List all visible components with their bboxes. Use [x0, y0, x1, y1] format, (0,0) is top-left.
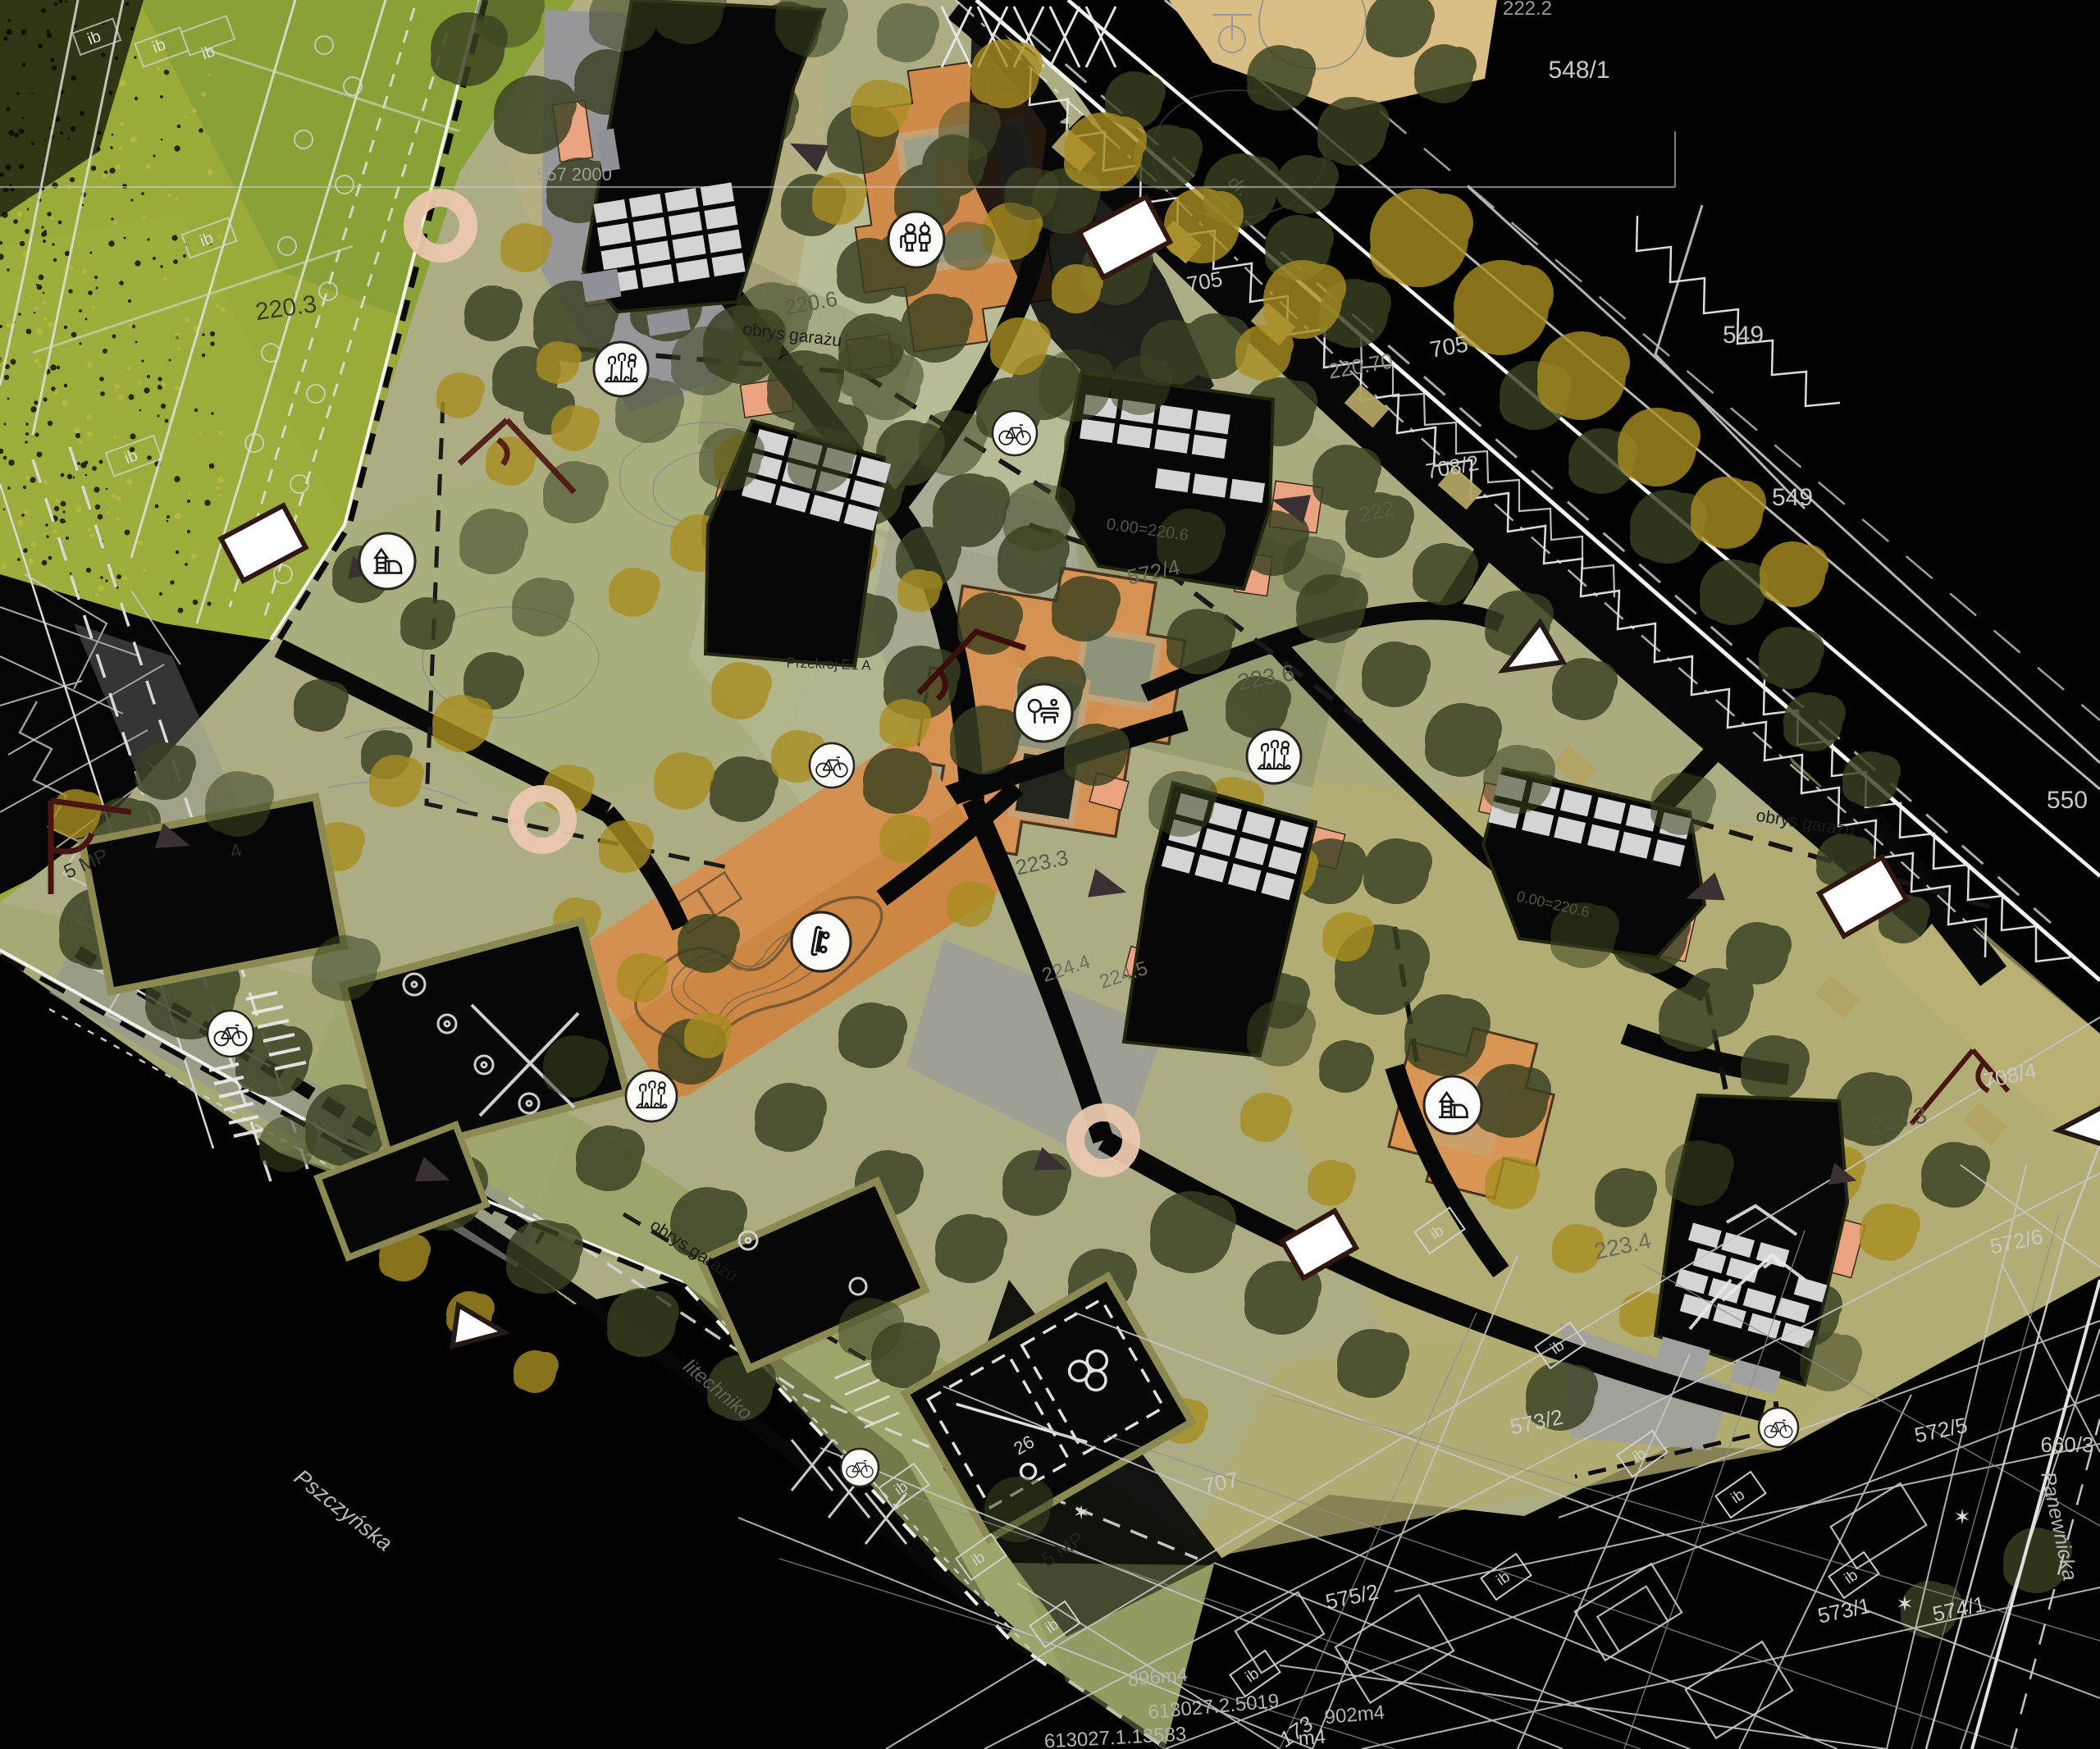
svg-text:660/3: 660/3	[2040, 1432, 2093, 1457]
svg-text:549: 549	[1772, 484, 1813, 511]
svg-text:549: 549	[1723, 322, 1764, 349]
svg-text:557 2000: 557 2000	[536, 164, 612, 185]
svg-text:Przekroj E1 A: Przekroj E1 A	[786, 655, 871, 674]
svg-text:548/1: 548/1	[1548, 57, 1609, 84]
svg-text:222.2: 222.2	[1503, 0, 1552, 20]
svg-text:550: 550	[2047, 787, 2088, 814]
svg-text:✶: ✶	[1073, 1502, 1089, 1524]
svg-text:✶: ✶	[1896, 1591, 1914, 1616]
svg-text:✶: ✶	[1953, 1505, 1971, 1529]
